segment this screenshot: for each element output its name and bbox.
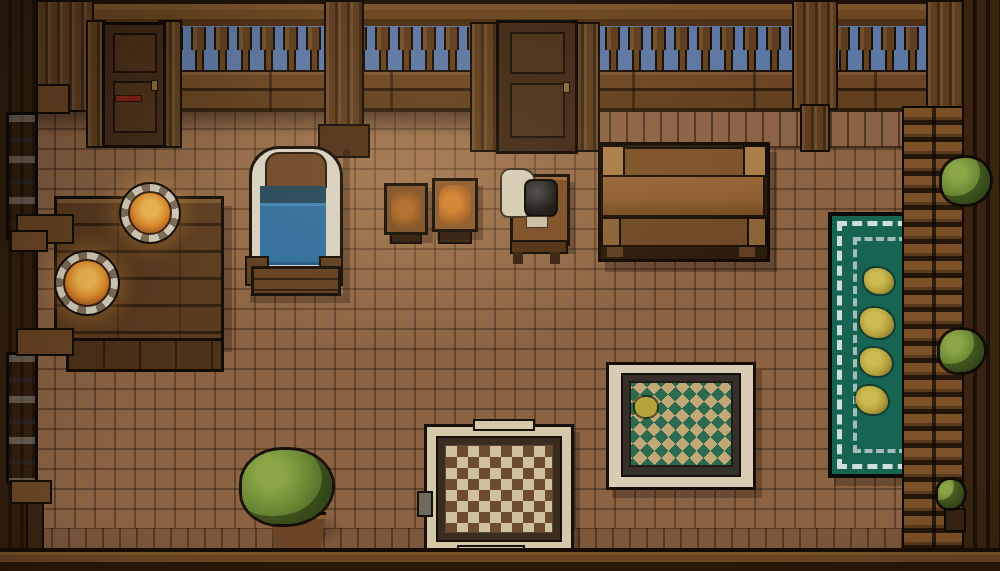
bed[interactable] xyxy=(243,140,343,294)
table-bench[interactable] xyxy=(66,338,224,372)
door-left[interactable] xyxy=(102,22,166,148)
glowing-food xyxy=(128,191,172,235)
stand-leg xyxy=(513,252,523,264)
bench-leg xyxy=(607,247,623,257)
bench-plank xyxy=(601,217,765,247)
rug-tab xyxy=(473,419,535,431)
rug-flower xyxy=(856,386,888,414)
door-handle xyxy=(563,82,570,93)
window-lower-left xyxy=(6,352,38,484)
stool-with-food[interactable] xyxy=(432,178,478,232)
door-panel xyxy=(510,32,566,74)
bench-plank xyxy=(601,175,765,217)
rug-tab xyxy=(417,491,433,517)
bench-corner xyxy=(601,145,625,177)
plate-of-food[interactable] xyxy=(119,182,181,244)
potted-plant[interactable] xyxy=(240,450,336,554)
game-scene xyxy=(0,0,1000,571)
glowing-food xyxy=(63,259,111,307)
window-sill xyxy=(10,480,52,504)
bench-corner xyxy=(601,217,621,247)
wall-post xyxy=(324,0,364,132)
checker-pattern xyxy=(445,445,553,533)
rug-flower xyxy=(864,268,894,294)
door-panel xyxy=(510,83,566,138)
door-panel xyxy=(113,33,156,73)
plant-pot xyxy=(944,508,966,532)
bench-corner xyxy=(747,217,767,247)
bench-leg xyxy=(739,247,755,257)
bed-footboard xyxy=(251,266,341,296)
bed-sheet-fold xyxy=(260,186,326,204)
table-wall-arm xyxy=(16,328,74,356)
bed-blanket xyxy=(260,203,326,265)
plate-of-food[interactable] xyxy=(54,250,120,316)
kettle-stand[interactable] xyxy=(500,166,570,266)
door-handle xyxy=(151,80,158,91)
wall-post xyxy=(792,0,838,110)
bench-corner xyxy=(743,145,767,177)
stand-label xyxy=(526,216,548,228)
corner-plant[interactable] xyxy=(936,480,970,532)
diamond-pattern xyxy=(629,381,733,467)
stool-with-food[interactable] xyxy=(384,183,428,235)
food-item xyxy=(439,185,471,225)
checkered-rug[interactable] xyxy=(424,424,574,554)
bottom-wall xyxy=(0,548,1000,571)
diamond-rug[interactable] xyxy=(606,362,756,490)
window-sill xyxy=(10,230,48,252)
bench[interactable] xyxy=(598,142,770,262)
bed-headboard xyxy=(265,152,327,188)
bush-foliage xyxy=(938,480,964,508)
door-latch-bar xyxy=(115,95,141,102)
door-middle[interactable] xyxy=(496,20,578,154)
bench-plank xyxy=(601,147,765,177)
black-kettle xyxy=(524,179,558,217)
stand-leg xyxy=(550,252,560,264)
game-piece xyxy=(635,397,657,417)
wall-post-stem xyxy=(800,104,830,152)
rug-flower xyxy=(860,348,892,376)
food-item xyxy=(391,190,421,228)
